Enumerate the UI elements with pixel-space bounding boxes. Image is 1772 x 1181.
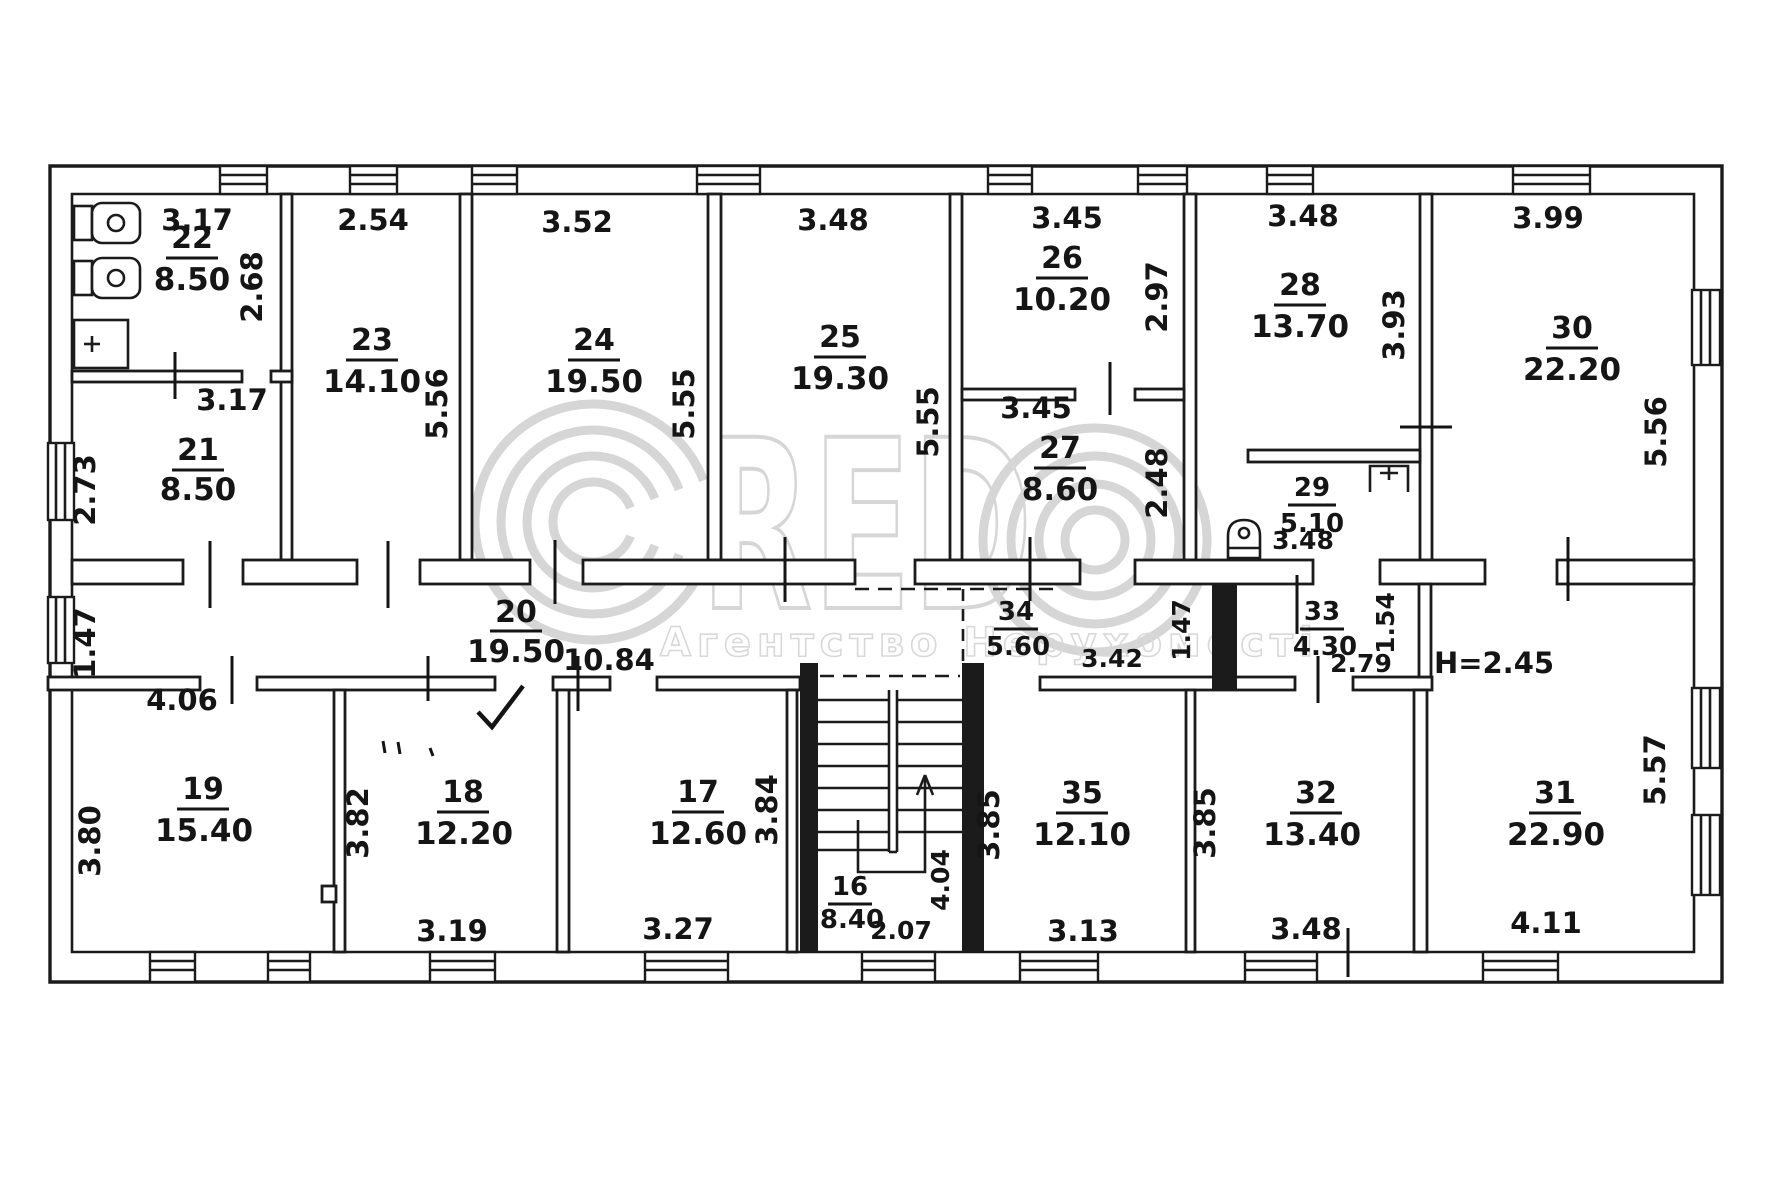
ceiling-height-note: H=2.45	[1434, 646, 1554, 680]
window-icon	[1692, 688, 1720, 768]
window-icon	[1483, 952, 1558, 982]
dim-label: 5.55	[911, 386, 945, 458]
room-area: 5.60	[986, 632, 1050, 662]
floor-plan-page: RED Агентство Нерухомості	[0, 0, 1772, 1181]
room-number: 31	[1534, 776, 1576, 811]
dim-label: 3.17	[161, 203, 233, 237]
stair-stringer	[889, 690, 897, 852]
dim-label: 3.85	[1188, 787, 1222, 859]
window-icon	[150, 952, 195, 982]
dim-label: 3.80	[73, 805, 107, 877]
dim-label: 2.48	[1140, 447, 1174, 519]
room-area: 19.30	[791, 361, 889, 397]
dim-label: 3.85	[972, 789, 1006, 861]
dim-label: 2.97	[1140, 261, 1174, 333]
window-icon	[472, 166, 517, 194]
window-icon	[1692, 290, 1720, 365]
dim-label: 3.93	[1377, 289, 1411, 361]
dim-label: 3.17	[196, 383, 268, 417]
room-area: 19.50	[467, 634, 565, 670]
window-icon	[268, 952, 310, 982]
dim-label: 3.99	[1512, 201, 1584, 235]
room-19-label: 19 15.40	[155, 772, 253, 849]
dim-label: 4.06	[146, 683, 218, 717]
window-icon	[430, 952, 495, 982]
room-24-label: 24 19.50	[545, 323, 643, 400]
window-icon	[1692, 815, 1720, 895]
pencil-marks	[383, 741, 433, 756]
room-area: 22.20	[1523, 352, 1621, 388]
window-icon	[1513, 166, 1590, 194]
toilet-icon	[74, 203, 140, 243]
room-area: 12.60	[649, 816, 747, 852]
room-area: 12.10	[1033, 817, 1131, 853]
room-26-label: 26 10.20	[1013, 241, 1111, 318]
dim-label: 3.48	[1272, 526, 1334, 555]
dim-label: 3.82	[341, 787, 375, 859]
checkmark-annotation	[478, 686, 523, 727]
room-area: 22.90	[1507, 817, 1605, 853]
room-number: 26	[1041, 241, 1083, 276]
room-32-label: 32 13.40	[1263, 776, 1361, 853]
boiler-icon	[1228, 520, 1260, 558]
wash-basin-icon	[1370, 466, 1408, 492]
room-area: 13.40	[1263, 817, 1361, 853]
room-number: 19	[182, 772, 224, 807]
room-30-label: 30 22.20	[1523, 311, 1621, 388]
window-icon	[220, 166, 267, 194]
room-number: 33	[1304, 597, 1340, 627]
sink-icon	[74, 320, 128, 368]
room-18-label: 18 12.20	[415, 775, 513, 852]
dim-label: 3.48	[797, 203, 869, 237]
room-23-label: 23 14.10	[323, 323, 421, 400]
room-17-label: 17 12.60	[649, 775, 747, 852]
floor-plan: RED Агентство Нерухомості	[0, 0, 1772, 1181]
dim-label: 2.54	[337, 203, 409, 237]
room-number: 17	[677, 775, 719, 810]
dim-label: 3.84	[750, 774, 784, 846]
room-number: 25	[819, 320, 861, 355]
window-icon	[1138, 166, 1187, 194]
dim-label: 5.56	[420, 368, 454, 440]
room-area: 8.50	[154, 262, 231, 298]
room-area: 14.10	[323, 364, 421, 400]
room-area: 15.40	[155, 813, 253, 849]
room-25-label: 25 19.30	[791, 320, 889, 397]
dim-label: 1.47	[1167, 599, 1196, 661]
window-icon	[1267, 166, 1313, 194]
room-number: 24	[573, 323, 615, 358]
dim-label: 4.11	[1510, 906, 1582, 940]
room-number: 34	[998, 597, 1034, 627]
room-area: 8.60	[1022, 472, 1099, 508]
dim-label: 3.45	[1000, 391, 1072, 425]
dim-label: 3.19	[416, 914, 488, 948]
toilet-icon	[74, 258, 140, 298]
dim-label: 3.48	[1270, 912, 1342, 946]
dim-label: 3.42	[1081, 644, 1143, 673]
dim-label: 1.54	[1371, 592, 1400, 654]
room-number: 21	[177, 433, 219, 468]
room-area: 12.20	[415, 816, 513, 852]
room-area: 10.20	[1013, 282, 1111, 318]
room-number: 29	[1294, 473, 1330, 503]
room-35-label: 35 12.10	[1033, 776, 1131, 853]
dim-label: 10.84	[563, 643, 655, 677]
dim-label: 5.55	[667, 368, 701, 440]
window-icon	[1020, 952, 1098, 982]
room-number: 35	[1061, 776, 1103, 811]
window-icon	[988, 166, 1032, 194]
stairwell-left-wall	[800, 663, 818, 952]
room-31-label: 31 22.90	[1507, 776, 1605, 853]
dim-label: 2.68	[235, 251, 269, 323]
dim-label: 3.27	[642, 912, 714, 946]
room-number: 28	[1279, 268, 1321, 303]
dim-label: 3.13	[1047, 914, 1119, 948]
dim-label: 2.07	[870, 916, 932, 945]
dim-label: 3.52	[541, 205, 613, 239]
dim-label: 2.73	[68, 454, 102, 526]
room-number: 27	[1039, 431, 1081, 466]
room-number: 16	[832, 872, 868, 902]
window-icon	[350, 166, 397, 194]
room-28-label: 28 13.70	[1251, 268, 1349, 345]
dim-label: 3.45	[1031, 201, 1103, 235]
corridor-pillar	[1212, 584, 1237, 690]
room-number: 32	[1295, 776, 1337, 811]
stair-landing-outline	[858, 775, 925, 872]
window-icon	[697, 166, 760, 194]
room-number: 18	[442, 775, 484, 810]
room-area: 13.70	[1251, 309, 1349, 345]
window-icon	[862, 952, 935, 982]
room-number: 20	[495, 595, 537, 630]
room-number: 30	[1551, 311, 1593, 346]
room-area: 19.50	[545, 364, 643, 400]
room-number: 23	[351, 323, 393, 358]
dim-label: 1.47	[68, 607, 102, 679]
window-icon	[1245, 952, 1317, 982]
window-icon	[645, 952, 728, 982]
room-area: 8.50	[160, 472, 237, 508]
dim-label: 4.04	[926, 849, 955, 911]
dim-label: 5.56	[1639, 396, 1673, 468]
dim-label: 3.48	[1267, 199, 1339, 233]
room-21-label: 21 8.50	[160, 433, 237, 508]
dim-label: 5.57	[1638, 734, 1672, 806]
